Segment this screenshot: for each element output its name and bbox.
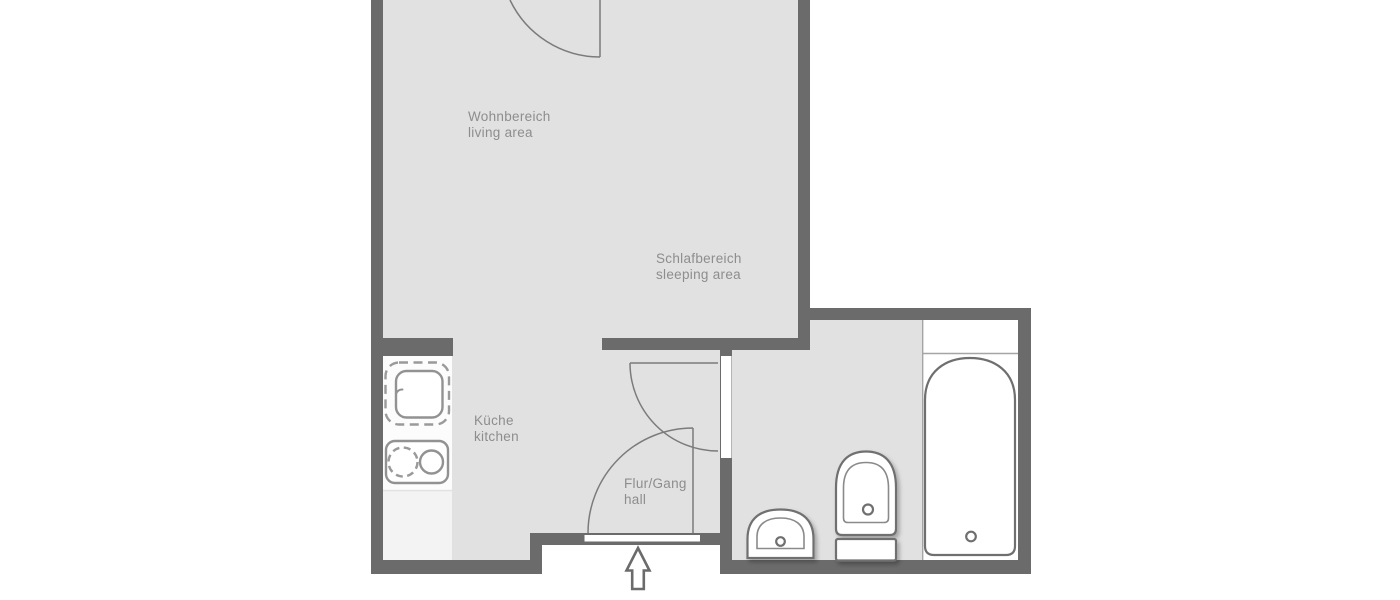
bathtub-basin: [925, 358, 1015, 555]
hall-label-de: Flur/Gang: [624, 476, 687, 491]
entrance-door-threshold: [585, 535, 701, 542]
bathtub-drain: [966, 532, 976, 542]
floor-plan-canvas: Wohnbereich living area Schlafbereich sl…: [0, 0, 1400, 600]
living-area-floor: [383, 0, 798, 345]
bathroom-door-opening: [721, 356, 732, 458]
wall-living-bottom: [602, 338, 810, 350]
wall-kitchen-stub: [371, 338, 453, 356]
hall-label-en: hall: [624, 492, 646, 507]
toilet-cistern: [836, 539, 896, 561]
bathtub-icon: [922, 320, 1018, 560]
toilet-icon: [836, 452, 896, 561]
bathroom-sink-drain: [776, 537, 785, 546]
wall-left: [371, 0, 383, 574]
wall-bathroom-right: [1018, 308, 1031, 574]
toilet-drain: [863, 505, 873, 515]
floor-plan-svg: Wohnbereich living area Schlafbereich sl…: [0, 0, 1400, 600]
living-area-label-de: Wohnbereich: [468, 109, 551, 124]
bathroom-sink-icon: [748, 510, 814, 559]
sleeping-area-label-en: sleeping area: [656, 267, 741, 282]
entrance-arrow-icon: [627, 548, 650, 589]
kitchen-label-de: Küche: [474, 413, 514, 428]
kitchen-counter-lower: [383, 491, 452, 560]
wall-kitchen-bottom: [371, 560, 542, 574]
wall-living-right: [798, 0, 810, 350]
living-area-label-en: living area: [468, 125, 533, 140]
sleeping-area-label-de: Schlafbereich: [656, 251, 742, 266]
wall-bathroom-bottom: [720, 560, 1031, 574]
wall-bathroom-top: [798, 308, 1031, 320]
kitchen-label-en: kitchen: [474, 429, 519, 444]
stove-icon: [386, 441, 448, 483]
kitchen-sink-basin: [396, 371, 443, 418]
